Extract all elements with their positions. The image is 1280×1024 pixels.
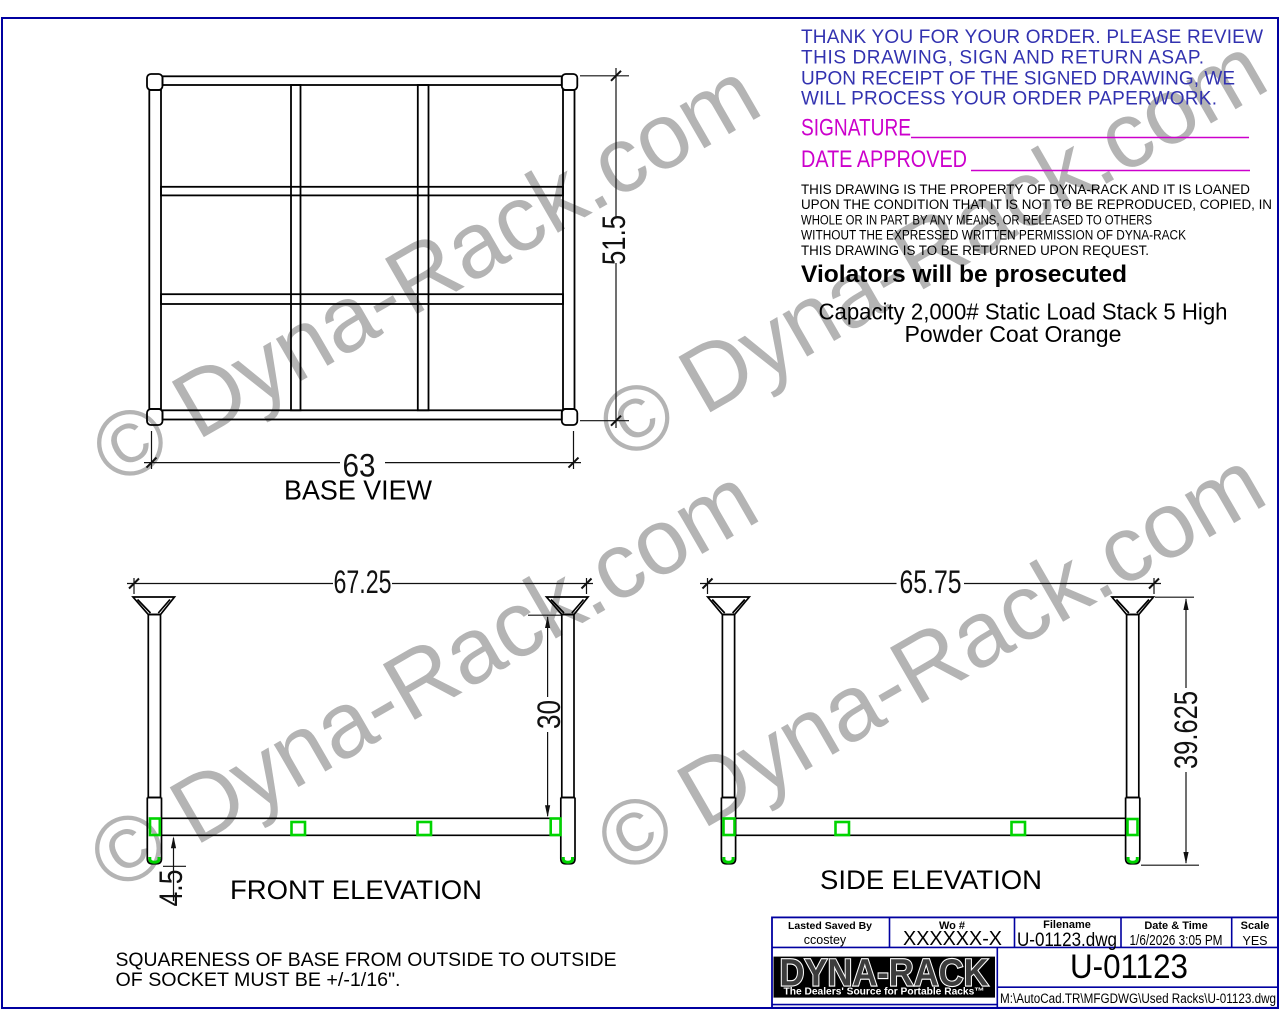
svg-text:THIS DRAWING, SIGN AND RETURN: THIS DRAWING, SIGN AND RETURN ASAP.: [801, 48, 1204, 69]
svg-text:THANK YOU FOR YOUR ORDER. PLEA: THANK YOU FOR YOUR ORDER. PLEASE REVIEW: [801, 27, 1263, 48]
svg-text:YES: YES: [1242, 934, 1267, 948]
svg-text:Scale: Scale: [1241, 920, 1270, 932]
svg-text:XXXXXX-X: XXXXXX-X: [903, 927, 1002, 950]
svg-text:DATE APPROVED: DATE APPROVED: [801, 146, 967, 173]
svg-text:Powder Coat Orange: Powder Coat Orange: [905, 321, 1122, 347]
svg-text:Lasted Saved By: Lasted Saved By: [788, 920, 872, 932]
svg-text:THIS DRAWING IS THE PROPERTY O: THIS DRAWING IS THE PROPERTY OF DYNA-RAC…: [801, 182, 1250, 198]
svg-text:UPON RECEIPT OF THE SIGNED DRA: UPON RECEIPT OF THE SIGNED DRAWING, WE: [801, 68, 1235, 89]
svg-text:Date & Time: Date & Time: [1144, 920, 1207, 932]
svg-text:39.625: 39.625: [1168, 691, 1204, 769]
svg-text:M:\AutoCad.TR\MFGDWG\Used Rack: M:\AutoCad.TR\MFGDWG\Used Racks\U-01123.…: [1000, 991, 1276, 1006]
svg-text:BASE VIEW: BASE VIEW: [284, 475, 433, 506]
svg-text:SIGNATURE: SIGNATURE: [801, 115, 911, 142]
svg-text:WITHOUT THE EXPRESSED WRITTEN: WITHOUT THE EXPRESSED WRITTEN PERMISSION…: [801, 228, 1186, 244]
svg-text:Violators will be prosecuted: Violators will be prosecuted: [801, 261, 1127, 288]
svg-text:65.75: 65.75: [900, 564, 962, 600]
svg-text:WHOLE OR IN PART BY ANY MEANS,: WHOLE OR IN PART BY ANY MEANS, OR RELEAS…: [801, 212, 1152, 228]
svg-text:1/6/2026 3:05 PM: 1/6/2026 3:05 PM: [1130, 932, 1223, 949]
svg-text:OF SOCKET MUST BE +/-1/16".: OF SOCKET MUST BE +/-1/16".: [116, 970, 401, 991]
svg-text:67.25: 67.25: [334, 564, 392, 600]
svg-text:SQUARENESS OF BASE FROM OUTSID: SQUARENESS OF BASE FROM OUTSIDE TO OUTSI…: [116, 950, 617, 971]
svg-text:U-01123: U-01123: [1070, 948, 1188, 986]
svg-text:UPON THE CONDITION THAT IT IS: UPON THE CONDITION THAT IT IS NOT TO BE …: [801, 197, 1272, 213]
svg-text:51.5: 51.5: [596, 215, 632, 265]
svg-text:FRONT ELEVATION: FRONT ELEVATION: [230, 875, 482, 905]
svg-text:WILL PROCESS YOUR ORDER PAPERW: WILL PROCESS YOUR ORDER PAPERWORK.: [801, 89, 1217, 110]
svg-text:SIDE ELEVATION: SIDE ELEVATION: [820, 865, 1042, 895]
svg-text:The Dealers' Source for Portab: The Dealers' Source for Portable Racks™: [784, 987, 985, 998]
svg-text:4.5: 4.5: [153, 870, 189, 907]
svg-text:THIS DRAWING IS TO BE RETURNED: THIS DRAWING IS TO BE RETURNED UPON REQU…: [801, 243, 1149, 259]
svg-text:ccostey: ccostey: [804, 933, 847, 947]
svg-text:30: 30: [531, 700, 567, 729]
